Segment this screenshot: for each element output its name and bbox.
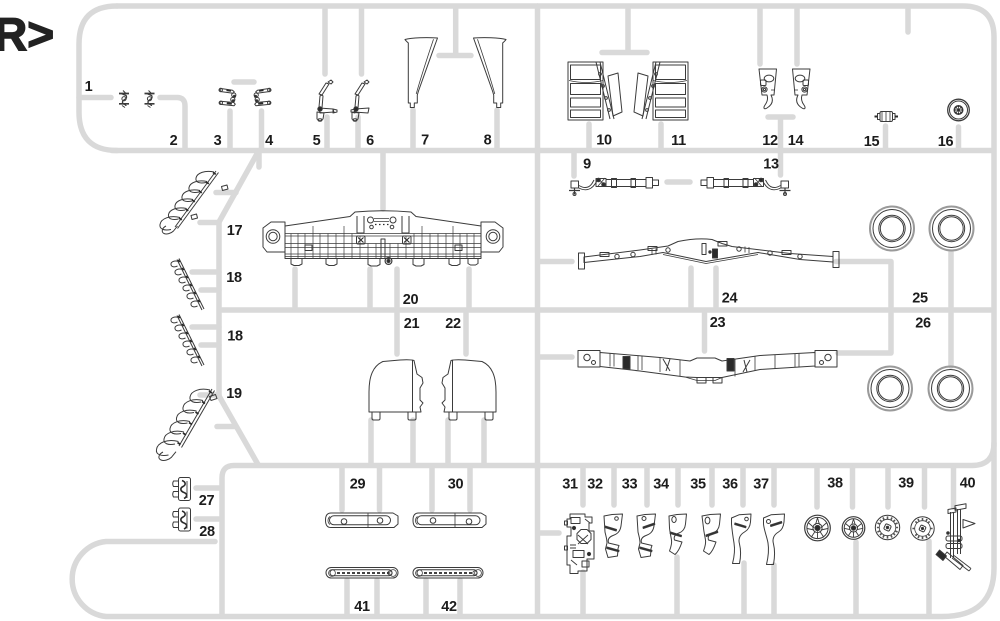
svg-text:41: 41	[354, 599, 370, 615]
svg-text:22: 22	[445, 316, 461, 332]
svg-text:16: 16	[938, 134, 954, 150]
svg-text:10: 10	[596, 133, 612, 149]
svg-text:13: 13	[763, 157, 779, 173]
svg-text:17: 17	[227, 223, 243, 239]
svg-text:23: 23	[710, 315, 726, 331]
svg-text:8: 8	[484, 133, 492, 149]
svg-text:12: 12	[762, 133, 778, 149]
svg-text:30: 30	[448, 477, 464, 493]
svg-text:R>: R>	[0, 8, 54, 60]
svg-text:32: 32	[587, 477, 603, 493]
svg-text:7: 7	[421, 133, 429, 149]
svg-text:35: 35	[690, 477, 706, 493]
svg-text:28: 28	[199, 524, 215, 540]
svg-text:9: 9	[583, 157, 591, 173]
svg-text:2: 2	[170, 133, 178, 149]
svg-text:14: 14	[788, 133, 804, 149]
svg-text:15: 15	[864, 134, 880, 150]
svg-text:4: 4	[265, 133, 273, 149]
svg-text:5: 5	[313, 133, 321, 149]
svg-text:1: 1	[85, 79, 93, 95]
svg-text:24: 24	[722, 291, 738, 307]
svg-text:26: 26	[915, 316, 931, 332]
svg-text:18: 18	[227, 329, 243, 345]
svg-text:27: 27	[199, 493, 215, 509]
svg-text:31: 31	[562, 477, 578, 493]
svg-text:40: 40	[960, 476, 976, 492]
svg-text:39: 39	[898, 476, 914, 492]
svg-text:29: 29	[350, 477, 366, 493]
svg-text:11: 11	[671, 133, 686, 149]
svg-text:34: 34	[653, 477, 669, 493]
svg-text:20: 20	[403, 292, 419, 308]
svg-text:6: 6	[366, 133, 374, 149]
svg-text:38: 38	[827, 476, 843, 492]
svg-text:3: 3	[214, 133, 222, 149]
svg-text:21: 21	[404, 316, 420, 332]
svg-text:37: 37	[753, 477, 769, 493]
svg-text:18: 18	[226, 270, 242, 286]
svg-text:33: 33	[622, 477, 638, 493]
svg-text:42: 42	[441, 599, 457, 615]
svg-text:36: 36	[722, 477, 738, 493]
svg-text:25: 25	[912, 291, 928, 307]
svg-text:19: 19	[226, 386, 242, 402]
